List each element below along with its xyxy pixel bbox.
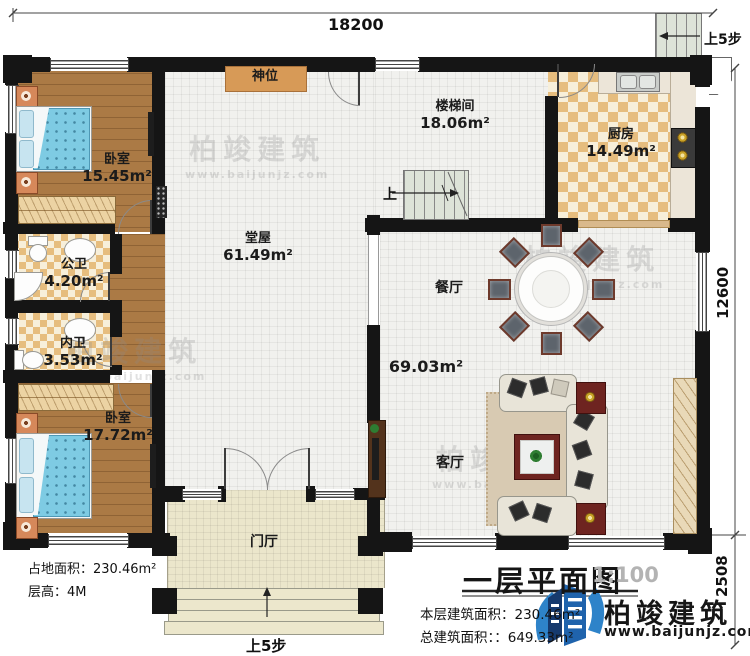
plant bbox=[528, 448, 544, 464]
window bbox=[696, 252, 709, 332]
tv bbox=[372, 438, 379, 480]
room-area: 15.45m² bbox=[82, 168, 152, 185]
room-name: 厨房 bbox=[586, 128, 656, 143]
stove-burner bbox=[677, 132, 688, 143]
side-table-decor bbox=[585, 392, 595, 402]
dining-chair bbox=[541, 224, 562, 247]
entry-door-leaf bbox=[224, 448, 226, 489]
wall bbox=[695, 107, 710, 252]
sofa-cushion bbox=[551, 379, 570, 398]
wall bbox=[663, 533, 710, 550]
wall bbox=[418, 57, 545, 72]
floor-plan: 柏竣建筑 www.baijunjz.com 柏竣建筑 www.baijunjz.… bbox=[0, 0, 750, 656]
wall bbox=[3, 370, 110, 383]
dim-right-main: 12600 bbox=[714, 275, 732, 319]
room-area: 69.03m² bbox=[389, 358, 463, 376]
floor-height-value: 4M bbox=[67, 585, 87, 600]
room-area: 14.49m² bbox=[586, 143, 656, 160]
room-area: 3.53m² bbox=[43, 352, 102, 369]
plant-small bbox=[370, 424, 379, 433]
room-label-bath-private: 内卫 3.53m² bbox=[43, 337, 102, 368]
nightstand bbox=[16, 172, 38, 194]
room-name: 卧室 bbox=[83, 412, 153, 427]
porch-pillar bbox=[358, 588, 383, 614]
room-label-shrine: 神位 bbox=[252, 70, 278, 85]
side-cabinet bbox=[673, 378, 697, 534]
wall bbox=[110, 234, 122, 274]
pillow bbox=[19, 140, 34, 168]
brand-website: www.baijunjz.com bbox=[604, 624, 750, 640]
nightstand bbox=[16, 86, 38, 108]
kitchen-sink-basin bbox=[639, 75, 656, 89]
wall bbox=[110, 300, 122, 337]
room-area: 4.20m² bbox=[44, 273, 103, 290]
dim-right-porch: 2508 bbox=[713, 557, 731, 597]
room-label-foyer: 门厅 bbox=[250, 535, 278, 551]
floor-area-value: 230.46m² bbox=[515, 607, 581, 623]
wall bbox=[545, 96, 558, 232]
kitchen-sink-basin bbox=[620, 75, 637, 89]
total-area-label: 总建筑面积： bbox=[420, 630, 494, 646]
dining-chair bbox=[592, 279, 615, 300]
total-area-line: 总建筑面积：：649.33m² bbox=[420, 626, 574, 646]
total-area-value: ：649.33m² bbox=[494, 630, 573, 646]
room-name: 神位 bbox=[252, 70, 278, 85]
room-name: 楼梯间 bbox=[420, 100, 490, 115]
room-name: 堂屋 bbox=[223, 232, 293, 247]
window bbox=[568, 536, 665, 549]
pillow bbox=[19, 438, 34, 474]
wall bbox=[367, 325, 380, 423]
stair-up-label: 上 bbox=[383, 184, 397, 204]
tv-panel bbox=[150, 444, 156, 488]
porch-step bbox=[164, 621, 384, 635]
room-area: 17.72m² bbox=[83, 427, 153, 444]
kitchen-threshold bbox=[578, 220, 670, 228]
room-name: 卧室 bbox=[82, 153, 152, 168]
room-label-kitchen: 厨房 14.49m² bbox=[586, 128, 656, 159]
hall-floor bbox=[165, 62, 375, 490]
room-label-hall: 堂屋 61.49m² bbox=[223, 232, 293, 263]
room-area: 18.06m² bbox=[420, 115, 490, 132]
exterior-stairs bbox=[655, 13, 702, 59]
dining-chair bbox=[488, 279, 511, 300]
wall bbox=[5, 57, 18, 85]
floor-area-label: 本层建筑面积： bbox=[420, 607, 515, 623]
room-label-dining: 餐厅 bbox=[435, 281, 463, 297]
side-door-opening bbox=[696, 87, 709, 107]
pillow bbox=[19, 477, 34, 513]
porch-pillar bbox=[152, 588, 177, 614]
dim-top: 18200 bbox=[328, 15, 384, 34]
wardrobe bbox=[18, 384, 114, 411]
window bbox=[315, 489, 355, 500]
room-label-stairwell: 楼梯间 18.06m² bbox=[420, 100, 490, 131]
site-area-value: 230.46m² bbox=[93, 562, 156, 577]
porch-pillar bbox=[152, 536, 177, 556]
window bbox=[48, 534, 129, 547]
room-label-living: 客厅 bbox=[436, 456, 464, 472]
drawing-scale: 1:100 bbox=[592, 563, 659, 587]
room-name: 客厅 bbox=[436, 456, 464, 472]
hall-cabinet bbox=[156, 186, 167, 218]
porch-pillar bbox=[358, 536, 383, 556]
wardrobe bbox=[18, 196, 116, 224]
wall bbox=[367, 215, 380, 235]
dining-chair bbox=[541, 332, 562, 355]
window bbox=[6, 318, 19, 345]
site-area-line: 占地面积：230.46m² bbox=[28, 558, 156, 577]
wall bbox=[362, 57, 375, 72]
stove-burner bbox=[677, 150, 688, 161]
door-leaf bbox=[150, 200, 152, 234]
room-label-bedroom2: 卧室 17.72m² bbox=[83, 412, 153, 443]
dining-table-center bbox=[532, 270, 570, 308]
floor-height-label: 层高： bbox=[28, 585, 67, 600]
nightstand bbox=[16, 413, 38, 435]
room-label-open-area: 69.03m² bbox=[389, 358, 463, 376]
room-label-bath-public: 公卫 4.20m² bbox=[44, 258, 103, 289]
door-leaf bbox=[110, 337, 112, 366]
entry-door-leaf bbox=[308, 448, 310, 489]
window bbox=[50, 58, 129, 71]
window bbox=[412, 536, 497, 549]
door-leaf bbox=[557, 64, 559, 97]
wall bbox=[695, 330, 710, 535]
room-label-bedroom1: 卧室 15.45m² bbox=[82, 153, 152, 184]
tv-panel bbox=[148, 112, 154, 156]
toilet-bowl bbox=[22, 351, 44, 369]
floor-height-line: 层高：4M bbox=[28, 581, 87, 600]
room-area: 61.49m² bbox=[223, 247, 293, 264]
room-name: 内卫 bbox=[43, 337, 102, 352]
stair-up5-top-label: 上5步 bbox=[704, 29, 742, 49]
room-name: 餐厅 bbox=[435, 281, 463, 297]
window bbox=[182, 489, 222, 500]
door-leaf bbox=[358, 72, 360, 105]
room-name: 公卫 bbox=[44, 258, 103, 273]
window bbox=[375, 58, 420, 71]
site-area-label: 占地面积： bbox=[28, 562, 93, 577]
nightstand bbox=[16, 517, 38, 539]
cased-opening bbox=[368, 235, 379, 325]
door-leaf bbox=[108, 272, 110, 301]
floor-area-line: 本层建筑面积：230.46m² bbox=[420, 603, 580, 623]
wall bbox=[695, 57, 710, 87]
room-name: 门厅 bbox=[250, 535, 278, 551]
pillow bbox=[19, 110, 34, 138]
interior-stairs bbox=[403, 170, 469, 220]
stair-up5-bottom-label: 上5步 bbox=[246, 635, 286, 656]
side-table-decor bbox=[585, 513, 595, 523]
